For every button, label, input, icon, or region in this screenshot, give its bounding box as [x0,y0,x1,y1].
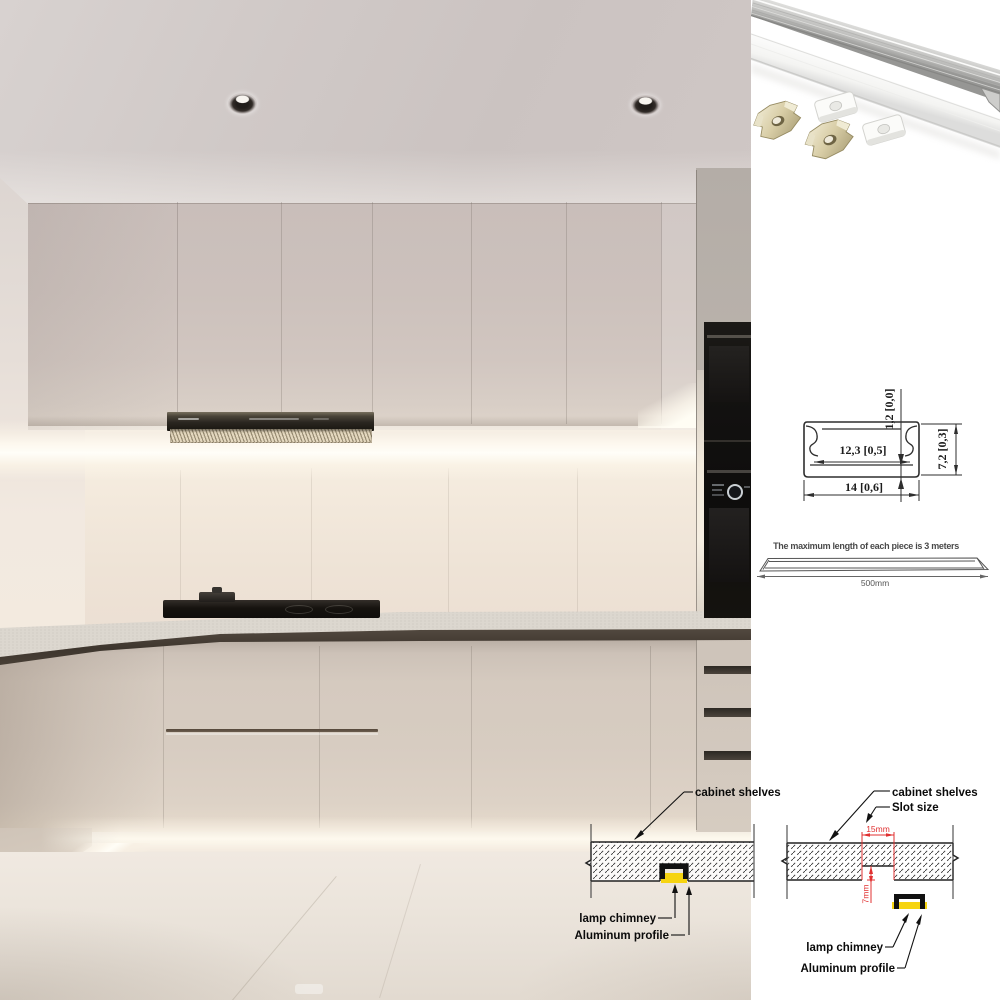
svg-text:1,2 [0,0]: 1,2 [0,0] [882,389,896,430]
svg-text:The maximum length of each pie: The maximum length of each piece is 3 me… [773,541,959,551]
svg-text:Aluminum profile: Aluminum profile [574,930,669,942]
svg-text:lamp chimney: lamp chimney [579,913,656,925]
svg-text:Aluminum profile: Aluminum profile [800,963,895,975]
svg-text:15mm: 15mm [866,824,890,834]
svg-text:cabinet shelves: cabinet shelves [695,787,781,799]
svg-text:500mm: 500mm [861,578,889,588]
svg-text:Slot size: Slot size [892,802,939,814]
svg-text:12,3 [0,5]: 12,3 [0,5] [840,443,887,457]
svg-text:7mm: 7mm [861,885,871,904]
svg-text:cabinet shelves: cabinet shelves [892,787,978,799]
svg-text:lamp chimney: lamp chimney [806,942,883,954]
svg-text:7,2 [0,3]: 7,2 [0,3] [935,429,949,470]
svg-text:14 [0,6]: 14 [0,6] [845,480,883,494]
